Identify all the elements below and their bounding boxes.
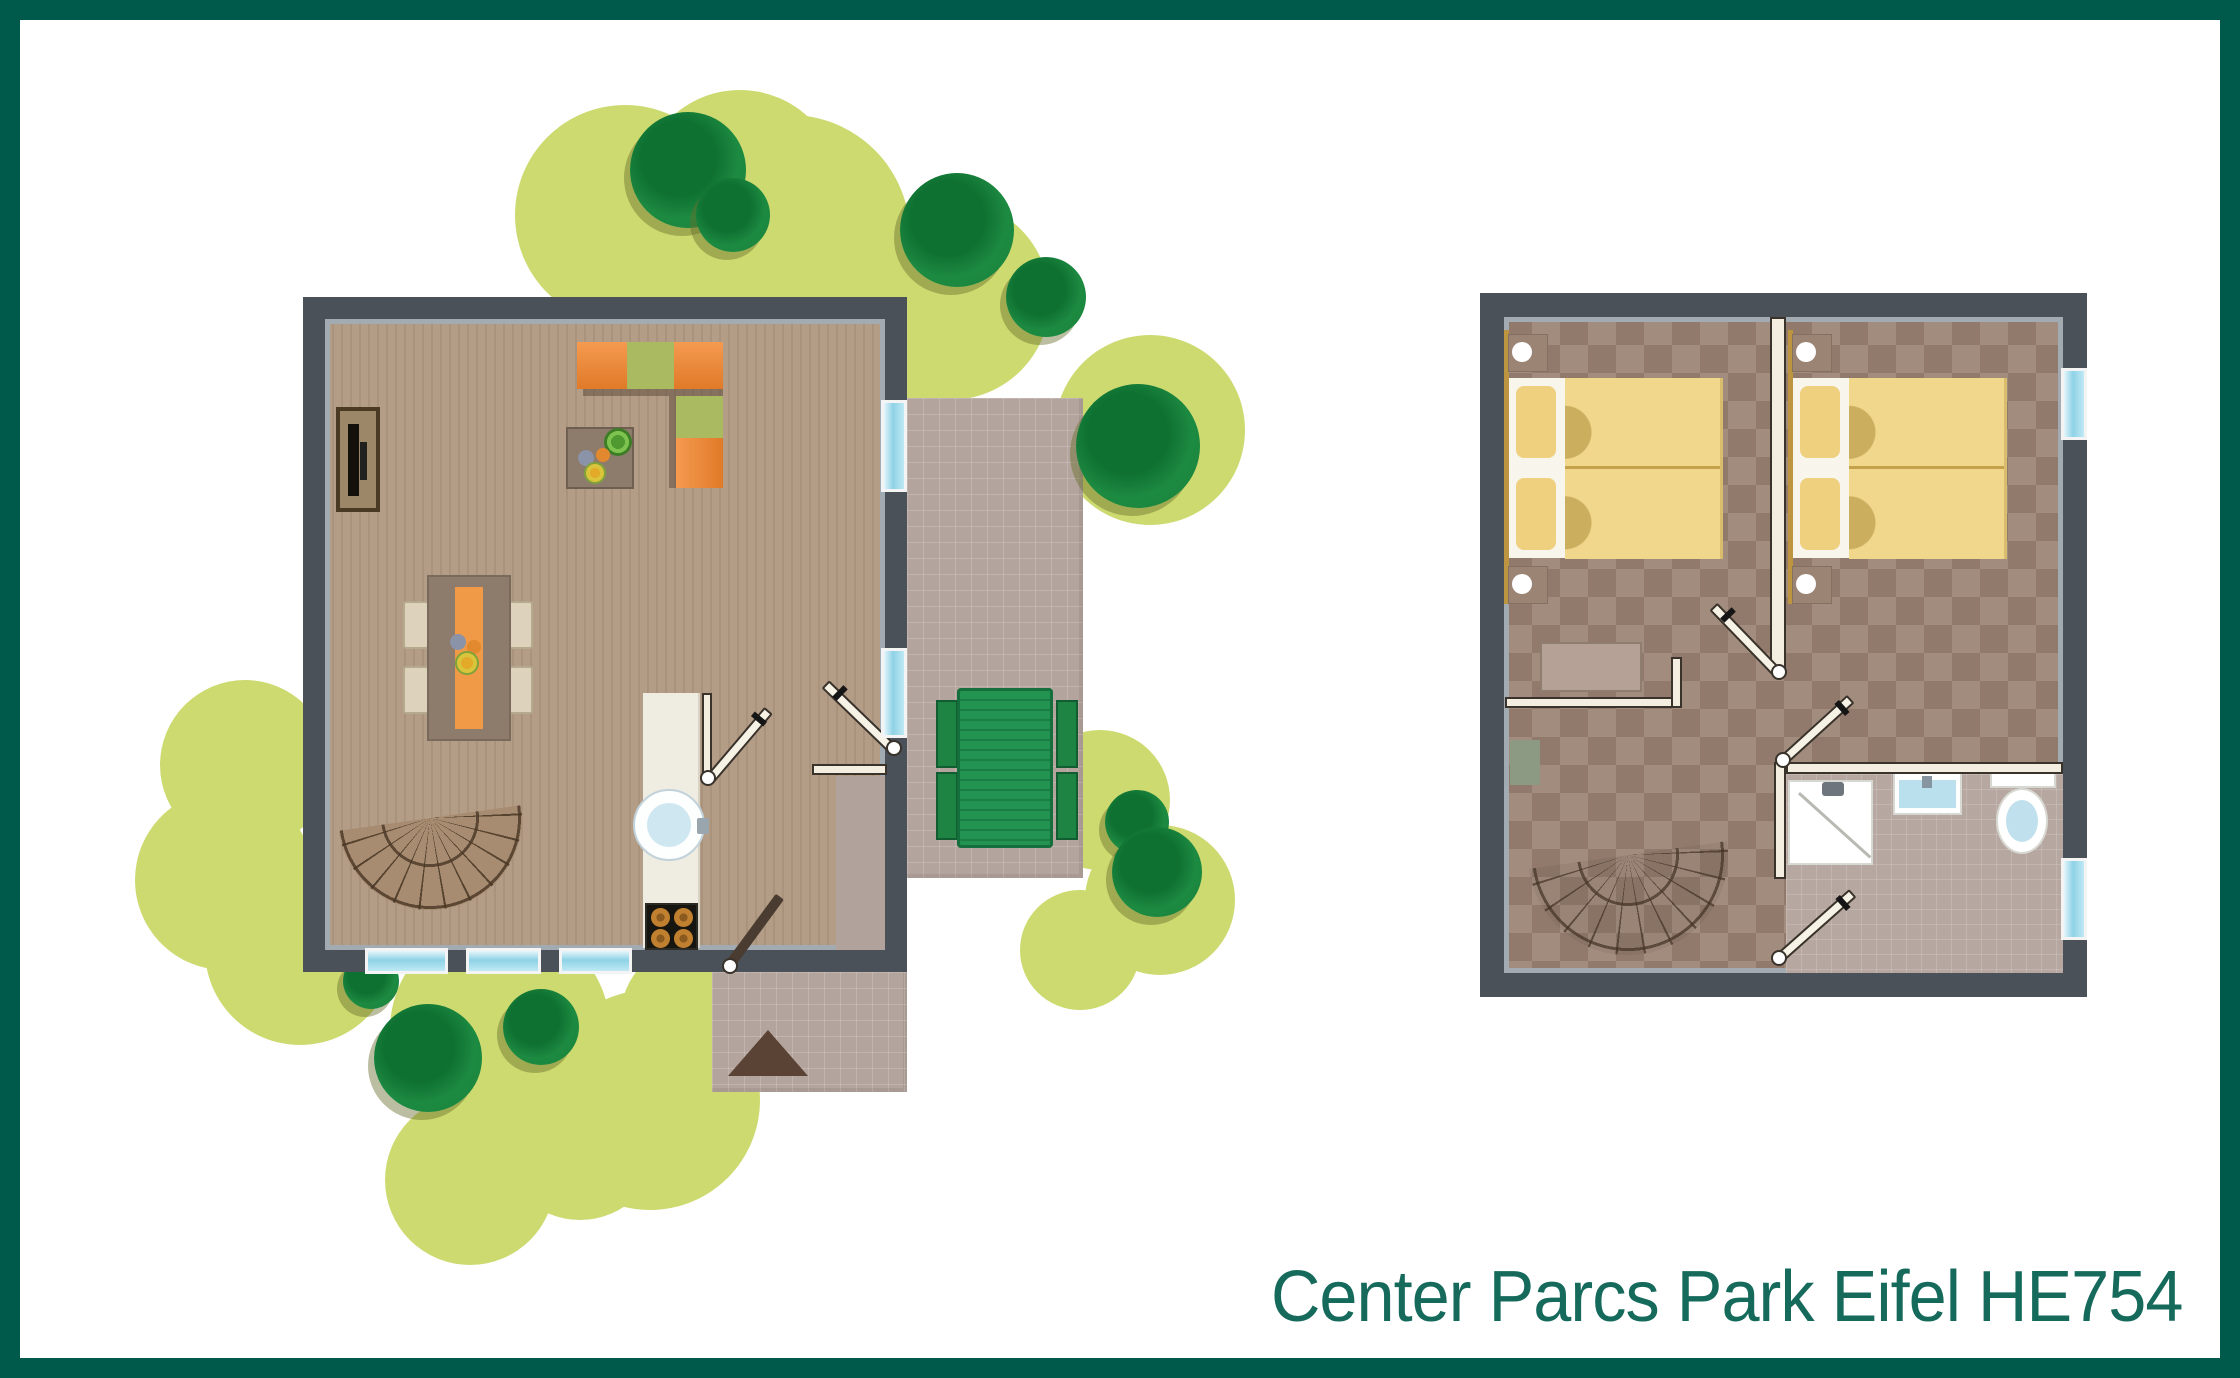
closet-wall [1505,697,1682,708]
bed-lamp-icon [1512,342,1532,362]
flower-icon [596,448,610,462]
window [466,948,541,974]
flower-icon [450,634,466,650]
picnic-bench [936,700,958,768]
bed-lamp-icon [1796,342,1816,362]
sofa-seat [627,342,674,389]
entrance-arrow [728,1030,808,1076]
tv-icon [348,424,359,496]
sofa-seat [674,342,723,389]
pillow [1800,478,1840,550]
window [2061,368,2087,440]
picnic-bench [1056,772,1078,840]
window [881,400,907,492]
tree [503,989,579,1065]
closet-wall [1671,657,1682,708]
bed-lamp-icon [1512,574,1532,594]
door-hinge [1771,664,1787,680]
burner-icon [674,929,693,948]
duvet [1565,378,1723,559]
window [2061,858,2087,940]
shower-head-icon [1822,782,1844,796]
dining-chair [403,601,429,649]
burner-icon [674,908,693,927]
plan-title: Center Parcs Park Eifel HE754 [1271,1256,2182,1338]
picnic-table [957,688,1053,848]
faucet-icon [697,818,709,834]
tree [1076,384,1200,508]
window [881,648,907,738]
bedroom-divider-wall [1770,317,1786,670]
tree [374,1004,482,1112]
burner-icon [651,929,670,948]
picnic-bench [936,772,958,840]
tree [696,178,770,252]
faucet-icon [1922,776,1932,788]
pillow [1800,386,1840,458]
door-hinge [700,770,716,786]
pillow [1516,478,1556,550]
kitchen-partition-wall [702,693,712,781]
dresser [1540,642,1642,692]
sofa-seat [676,438,723,488]
dining-chair [403,666,429,714]
sofa-shadow [669,396,676,488]
duvet-split-line [1565,466,1720,469]
sink-basin [647,803,691,847]
flower-icon [455,651,479,675]
sofa-shadow [583,389,723,396]
shrub-blob [500,1060,660,1220]
tree [1112,827,1202,917]
flower-icon [584,462,606,484]
floor-plan-image: Center Parcs Park Eifel HE754 [0,0,2240,1378]
duvet-split-line [1849,466,2004,469]
tv-icon [360,442,367,480]
sofa-seat [676,396,723,438]
toilet-bowl-inner [2006,800,2038,842]
plant-box [1510,740,1540,785]
bed-lamp-icon [1796,574,1816,594]
hall-wall [812,764,887,775]
tree [900,173,1014,287]
picnic-bench [1056,700,1078,768]
bathroom-wall [1786,762,2063,774]
door-hinge [886,740,902,756]
entrance-hall-floor [836,776,885,950]
bathroom-wall [1774,762,1786,879]
duvet [1849,378,2007,559]
door-hinge [1775,752,1791,768]
shrub-blob [1020,890,1140,1010]
tree [1006,257,1086,337]
window [365,948,448,974]
pillow [1516,386,1556,458]
door-hinge [722,958,738,974]
burner-icon [651,908,670,927]
window [559,948,632,974]
door-hinge [1771,950,1787,966]
sofa-seat [577,342,627,389]
